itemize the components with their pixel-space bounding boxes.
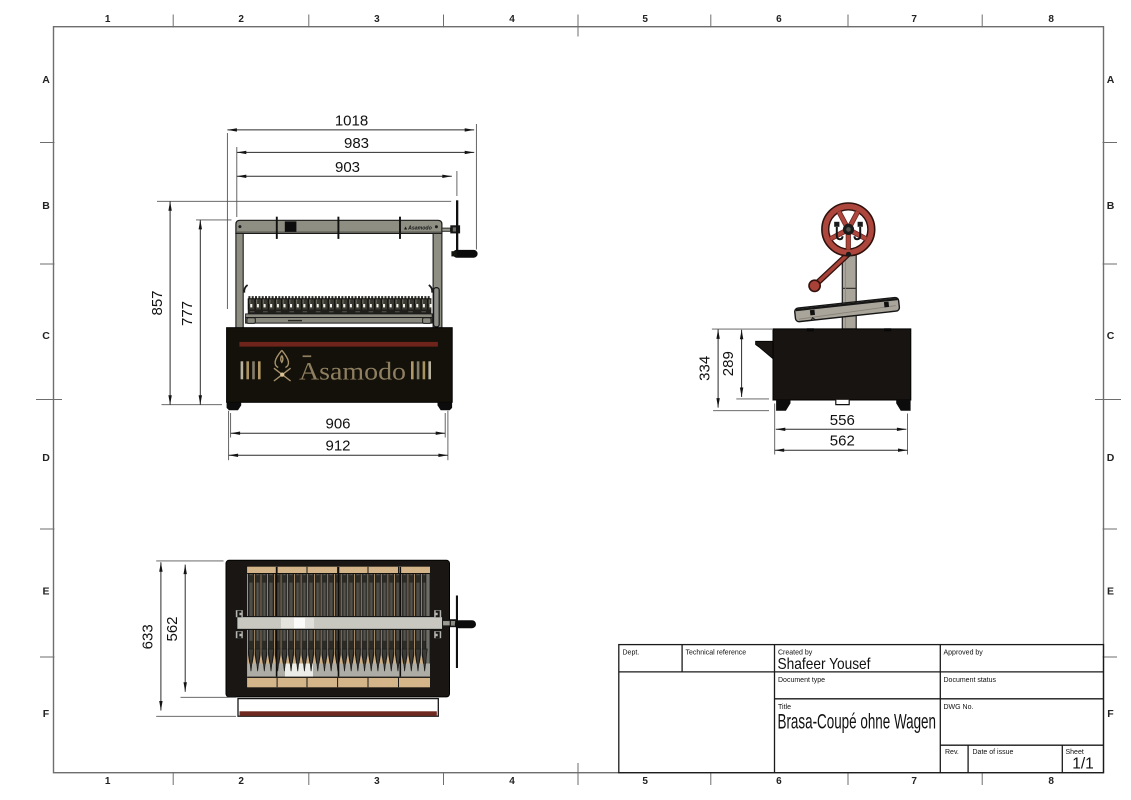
- svg-text:857: 857: [149, 290, 166, 315]
- svg-text:912: 912: [325, 438, 350, 455]
- svg-text:3: 3: [374, 14, 380, 25]
- svg-text:1: 1: [105, 776, 111, 787]
- svg-text:2: 2: [238, 776, 244, 787]
- svg-text:562: 562: [164, 616, 181, 641]
- svg-text:C: C: [42, 330, 50, 342]
- svg-text:Document type: Document type: [778, 677, 825, 684]
- svg-text:Approved by: Approved by: [944, 650, 984, 657]
- svg-text:D: D: [42, 452, 50, 464]
- svg-text:F: F: [1107, 708, 1114, 720]
- svg-text:Technical reference: Technical reference: [686, 650, 747, 657]
- svg-text:6: 6: [776, 776, 782, 787]
- svg-text:Shafeer Yousef: Shafeer Yousef: [778, 656, 871, 673]
- svg-text:4: 4: [509, 776, 515, 787]
- svg-text:F: F: [43, 708, 50, 720]
- svg-text:A: A: [42, 74, 50, 86]
- svg-text:D: D: [1107, 452, 1115, 464]
- svg-text:▲Asamodo: ▲Asamodo: [403, 225, 432, 231]
- svg-text:E: E: [1107, 586, 1114, 598]
- svg-text:903: 903: [335, 159, 360, 176]
- svg-text:5: 5: [642, 776, 648, 787]
- svg-text:556: 556: [830, 412, 855, 429]
- svg-text:7: 7: [911, 14, 917, 25]
- svg-text:8: 8: [1048, 14, 1054, 25]
- svg-text:1/1: 1/1: [1072, 755, 1094, 772]
- svg-text:1: 1: [105, 14, 111, 25]
- svg-text:1018: 1018: [335, 112, 368, 129]
- svg-text:Date of issue: Date of issue: [973, 749, 1014, 756]
- svg-text:DWG No.: DWG No.: [944, 704, 974, 711]
- svg-text:777: 777: [179, 301, 196, 326]
- svg-text:5: 5: [642, 14, 648, 25]
- svg-text:7: 7: [911, 776, 917, 787]
- svg-text:6: 6: [776, 14, 782, 25]
- svg-text:Rev.: Rev.: [945, 749, 959, 756]
- svg-text:Dept.: Dept.: [623, 650, 640, 657]
- svg-text:Document status: Document status: [944, 677, 997, 684]
- svg-text:289: 289: [720, 351, 737, 376]
- svg-text:C: C: [1107, 330, 1115, 342]
- svg-text:2: 2: [238, 14, 244, 25]
- svg-text:A: A: [1107, 74, 1115, 86]
- svg-text:334: 334: [697, 356, 714, 381]
- svg-text:Asamodo: Asamodo: [299, 359, 406, 386]
- svg-text:B: B: [1107, 200, 1115, 212]
- svg-text:E: E: [42, 586, 49, 598]
- svg-text:562: 562: [830, 433, 855, 450]
- svg-text:983: 983: [344, 135, 369, 152]
- svg-text:8: 8: [1048, 776, 1054, 787]
- svg-text:906: 906: [325, 416, 350, 433]
- svg-text:B: B: [42, 200, 50, 212]
- svg-text:633: 633: [140, 624, 157, 649]
- svg-text:Brasa-Coupé ohne Wagen: Brasa-Coupé ohne Wagen: [778, 711, 937, 734]
- svg-text:3: 3: [374, 776, 380, 787]
- svg-text:4: 4: [509, 14, 515, 25]
